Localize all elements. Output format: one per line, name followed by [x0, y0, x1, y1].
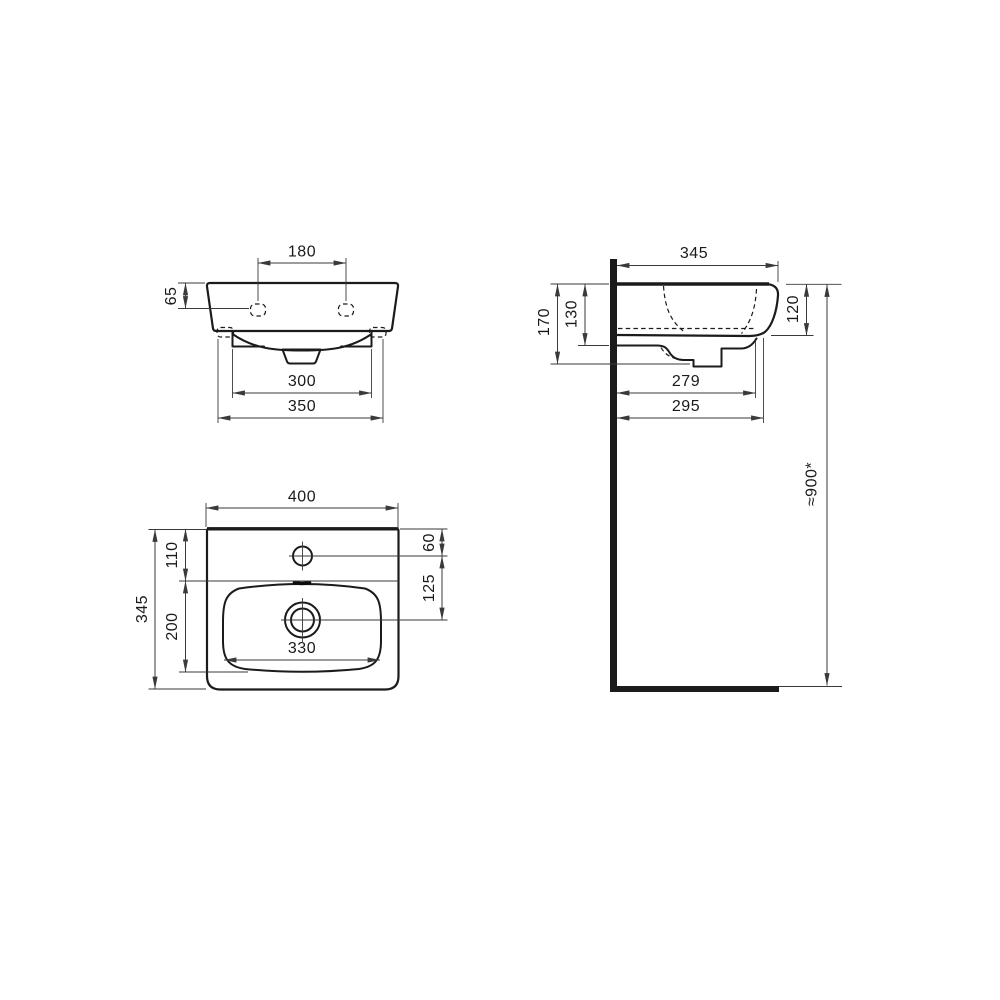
- side-ledge-and-trap: [617, 339, 757, 367]
- plan-dimensions: 400 345 110 200 60 125 330: [134, 489, 448, 690]
- side-inner-back-dashed: [664, 286, 686, 333]
- tap-hole-right: [339, 304, 354, 316]
- plan-dim-front-to-tap: 110: [164, 541, 181, 568]
- front-drain-outlet: [283, 350, 321, 364]
- front-dim-rim-to-tap: 65: [163, 287, 180, 306]
- side-dim-depth: 345: [680, 245, 708, 262]
- plan-dim-width: 400: [288, 489, 316, 506]
- side-dim-drain-distance: 279: [672, 373, 700, 390]
- basin-front-outline: [207, 283, 398, 331]
- wall: [610, 259, 617, 692]
- plan-dim-edge-to-tap: 60: [421, 533, 438, 552]
- front-under-tray-left: [233, 332, 265, 347]
- front-view: 180 65 300 350: [163, 244, 398, 424]
- side-dim-height-overall: 170: [536, 308, 553, 336]
- front-dim-tap-spacing: 180: [288, 244, 316, 261]
- side-dim-height-front: 120: [785, 295, 802, 323]
- side-dim-mounting-height: ≈900*: [804, 462, 821, 506]
- overflow-slot: [295, 583, 310, 584]
- side-dim-height-bowl: 130: [564, 300, 581, 328]
- plan-view: 400 345 110 200 60 125 330: [134, 489, 448, 690]
- side-inner-front-dashed: [742, 289, 757, 334]
- side-trap-dashed: [661, 348, 682, 360]
- plan-dim-tap-to-drain: 125: [421, 574, 438, 602]
- plan-dim-tap-to-bowl-end: 200: [164, 612, 181, 640]
- front-dim-shelf-width: 300: [288, 373, 316, 390]
- plan-inner-bowl: [223, 584, 381, 672]
- floor: [610, 686, 779, 692]
- plan-dim-bowl-width: 330: [288, 640, 316, 657]
- front-bowl-underside: [233, 334, 372, 351]
- technical-drawing-canvas: 180 65 300 350 345: [0, 0, 1000, 1000]
- plan-dim-depth: 345: [134, 595, 151, 623]
- fixing-hole-left: [217, 328, 234, 338]
- side-dim-front-distance: 295: [672, 398, 700, 415]
- front-dim-fixing-width: 350: [288, 398, 316, 415]
- front-dimensions: 180 65 300 350: [163, 244, 383, 424]
- drawing-sheet: 180 65 300 350 345: [0, 0, 1000, 1000]
- tap-hole-left: [251, 304, 266, 316]
- front-under-tray-right: [341, 332, 372, 347]
- side-view: 345 170 130 120 279 295 ≈900*: [536, 245, 842, 692]
- side-dimensions: 345 170 130 120 279 295 ≈900*: [536, 245, 842, 686]
